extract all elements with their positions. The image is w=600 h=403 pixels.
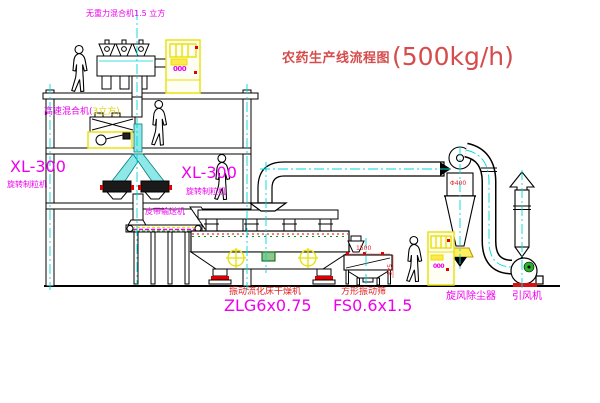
label-dryer-code: ZLG6x0.75 <box>224 298 312 314</box>
recirculation-pipe <box>466 150 512 267</box>
fluid-bed-dryer-machine <box>191 210 349 284</box>
control-cabinet-bottom <box>428 232 454 285</box>
label-high-speed-mixer-name: 高速混合机( <box>44 107 93 117</box>
label-cyclone-diameter: Φ400 <box>450 181 466 187</box>
label-sieve-code: FS0.6x1.5 <box>333 298 412 314</box>
induced-draft-fan <box>511 258 543 287</box>
person-figure-ground <box>407 236 422 281</box>
label-granulator-right-name: 旋转制粒机 <box>186 188 226 196</box>
label-granulator-left-code: XL-300 <box>10 159 66 175</box>
label-sieve-width-dim: 1500 <box>356 246 371 252</box>
label-high-speed-mixer: 高速混合机(3立方) <box>44 108 120 117</box>
label-high-speed-mixer-spec: 3立方) <box>93 107 120 117</box>
label-sieve-height-dim: 545 <box>385 264 391 275</box>
label-granulator-right-code: XL-300 <box>181 165 237 181</box>
person-figure-roof <box>72 46 87 92</box>
person-figure-floor2 <box>152 100 167 145</box>
label-cyclone: 旋风除尘器 <box>446 292 496 302</box>
flow-diagram-canvas: 农药生产线流程图 (500kg/h) 无重力混合机1.5 立方 高速混合机(3立… <box>0 0 600 403</box>
diagram-title: 农药生产线流程图 (500kg/h) <box>282 42 514 71</box>
label-granulator-left-name: 旋转制粒机 <box>7 181 47 189</box>
high-speed-mixer-machine <box>88 97 142 152</box>
square-sieve-machine <box>344 236 393 285</box>
cabinet-top-display: 000 <box>173 66 186 73</box>
diagram-title-capacity: (500kg/h) <box>392 42 514 71</box>
diagram-title-text: 农药生产线流程图 <box>282 47 390 66</box>
cabinet-bottom-display: 000 <box>433 264 444 270</box>
label-belt-conveyor: 皮带输送机 <box>145 208 185 216</box>
label-gravity-mixer: 无重力混合机1.5 立方 <box>86 10 165 18</box>
label-fan: 引风机 <box>512 292 542 302</box>
